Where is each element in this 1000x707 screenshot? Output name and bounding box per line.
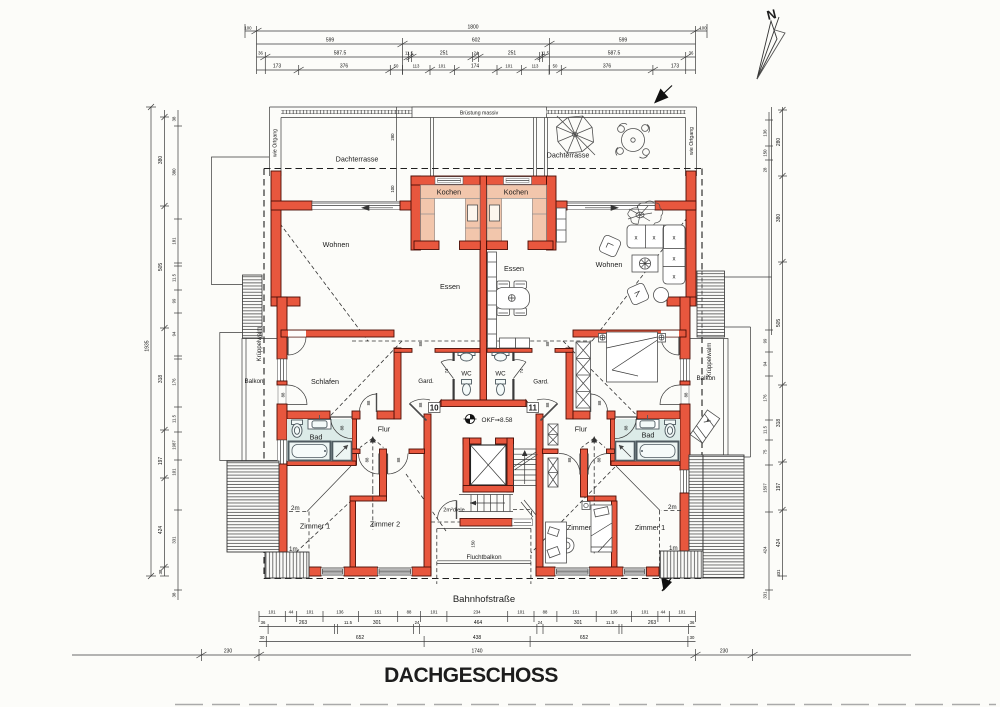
svg-text:Krüppelwalm: Krüppelwalm bbox=[257, 327, 263, 362]
svg-text:36: 36 bbox=[689, 51, 694, 56]
svg-text:424: 424 bbox=[158, 526, 164, 535]
svg-text:Fluchtbalkon: Fluchtbalkon bbox=[466, 554, 502, 561]
svg-text:176: 176 bbox=[763, 394, 768, 402]
svg-text:505: 505 bbox=[776, 319, 782, 328]
svg-text:2m: 2m bbox=[668, 504, 677, 511]
svg-text:599: 599 bbox=[326, 38, 335, 44]
svg-text:38: 38 bbox=[172, 592, 177, 597]
svg-text:Schlafen: Schlafen bbox=[311, 377, 339, 386]
svg-text:2m: 2m bbox=[291, 505, 300, 512]
svg-text:100: 100 bbox=[699, 26, 707, 31]
svg-text:DACHGESCHOSS: DACHGESCHOSS bbox=[384, 664, 558, 687]
svg-text:88: 88 bbox=[684, 392, 689, 397]
svg-text:602: 602 bbox=[472, 38, 481, 44]
svg-text:Flur: Flur bbox=[575, 425, 588, 434]
svg-text:11.5: 11.5 bbox=[405, 51, 414, 56]
svg-text:1m: 1m bbox=[669, 545, 678, 552]
svg-text:99: 99 bbox=[763, 338, 768, 343]
svg-text:100: 100 bbox=[390, 185, 395, 193]
svg-text:1740: 1740 bbox=[471, 649, 482, 655]
svg-text:Zimmer 1: Zimmer 1 bbox=[300, 522, 330, 531]
svg-text:94: 94 bbox=[172, 331, 177, 336]
svg-text:652: 652 bbox=[580, 635, 589, 641]
svg-text:36: 36 bbox=[261, 620, 266, 625]
svg-text:263: 263 bbox=[299, 620, 308, 626]
svg-text:Bahnhofstraße: Bahnhofstraße bbox=[453, 594, 515, 605]
svg-text:101: 101 bbox=[268, 610, 276, 615]
svg-text:36: 36 bbox=[258, 51, 263, 56]
svg-text:44: 44 bbox=[661, 610, 666, 615]
svg-text:44: 44 bbox=[289, 610, 294, 615]
svg-text:Krüppelwalm: Krüppelwalm bbox=[707, 343, 713, 378]
svg-text:88: 88 bbox=[365, 457, 370, 462]
svg-text:380: 380 bbox=[158, 156, 164, 165]
svg-text:280: 280 bbox=[776, 138, 782, 147]
svg-text:464: 464 bbox=[474, 620, 483, 626]
svg-text:318: 318 bbox=[158, 375, 164, 384]
svg-text:88: 88 bbox=[418, 402, 423, 407]
svg-text:331: 331 bbox=[763, 591, 768, 599]
svg-text:88: 88 bbox=[567, 457, 572, 462]
svg-text:181: 181 bbox=[172, 237, 177, 245]
svg-text:101: 101 bbox=[438, 64, 446, 69]
svg-text:Dachterrasse: Dachterrasse bbox=[336, 155, 379, 164]
svg-text:88: 88 bbox=[545, 402, 550, 407]
svg-text:301: 301 bbox=[373, 620, 382, 626]
svg-text:174: 174 bbox=[471, 64, 480, 70]
svg-text:11.5: 11.5 bbox=[763, 425, 768, 434]
svg-text:Zimmer 1: Zimmer 1 bbox=[635, 523, 665, 532]
svg-text:438: 438 bbox=[473, 635, 482, 641]
svg-text:Zimmer 2: Zimmer 2 bbox=[370, 520, 400, 529]
svg-text:136: 136 bbox=[763, 129, 768, 137]
svg-text:176: 176 bbox=[172, 378, 177, 386]
svg-text:75: 75 bbox=[763, 449, 768, 454]
svg-text:88: 88 bbox=[597, 457, 602, 462]
svg-text:x: x bbox=[673, 275, 676, 281]
svg-text:1800: 1800 bbox=[467, 25, 478, 31]
svg-text:376: 376 bbox=[603, 64, 612, 70]
svg-text:1m: 1m bbox=[289, 546, 298, 553]
svg-text:280: 280 bbox=[390, 133, 395, 141]
svg-text:24: 24 bbox=[415, 620, 420, 625]
svg-text:251: 251 bbox=[508, 51, 517, 57]
svg-text:Gard.: Gard. bbox=[533, 379, 549, 386]
svg-text:x: x bbox=[673, 257, 676, 263]
svg-text:301: 301 bbox=[574, 620, 583, 626]
svg-text:197: 197 bbox=[158, 457, 164, 466]
svg-text:24: 24 bbox=[538, 620, 543, 625]
svg-text:Essen: Essen bbox=[504, 264, 524, 273]
svg-text:251: 251 bbox=[440, 51, 449, 57]
svg-text:30: 30 bbox=[690, 635, 695, 640]
svg-text:88: 88 bbox=[366, 400, 371, 405]
svg-text:230: 230 bbox=[720, 649, 729, 655]
svg-text:331: 331 bbox=[172, 536, 177, 544]
svg-text:50: 50 bbox=[394, 64, 399, 69]
svg-text:652: 652 bbox=[356, 635, 365, 641]
svg-text:88: 88 bbox=[281, 392, 286, 397]
svg-text:1987: 1987 bbox=[172, 440, 177, 450]
svg-text:150: 150 bbox=[763, 149, 768, 157]
svg-text:101: 101 bbox=[505, 64, 513, 69]
svg-text:88: 88 bbox=[340, 425, 345, 430]
svg-text:11.5: 11.5 bbox=[172, 414, 177, 423]
svg-text:99: 99 bbox=[172, 298, 177, 303]
svg-text:1597: 1597 bbox=[763, 483, 768, 493]
svg-text:88: 88 bbox=[418, 341, 423, 346]
svg-text:380: 380 bbox=[776, 214, 782, 223]
svg-text:587.5: 587.5 bbox=[608, 51, 621, 57]
svg-text:234: 234 bbox=[473, 610, 481, 615]
svg-text:101: 101 bbox=[517, 610, 525, 615]
svg-text:Bad: Bad bbox=[310, 433, 323, 442]
svg-text:150: 150 bbox=[471, 540, 476, 548]
svg-text:30: 30 bbox=[260, 635, 265, 640]
svg-text:424: 424 bbox=[776, 539, 782, 548]
svg-text:38: 38 bbox=[172, 116, 177, 121]
svg-text:101: 101 bbox=[678, 610, 686, 615]
svg-text:74: 74 bbox=[444, 368, 449, 373]
svg-text:36: 36 bbox=[690, 620, 695, 625]
svg-text:11.5: 11.5 bbox=[606, 620, 615, 625]
svg-text:380: 380 bbox=[172, 168, 177, 176]
svg-text:WC: WC bbox=[461, 371, 472, 378]
svg-text:173: 173 bbox=[273, 64, 282, 70]
svg-text:Kochen: Kochen bbox=[437, 188, 461, 197]
svg-text:587.5: 587.5 bbox=[334, 51, 347, 57]
svg-text:331: 331 bbox=[776, 569, 781, 577]
svg-text:x: x bbox=[673, 236, 676, 242]
svg-text:151: 151 bbox=[374, 610, 382, 615]
svg-text:11: 11 bbox=[528, 404, 537, 413]
svg-text:38: 38 bbox=[158, 569, 163, 574]
svg-text:Flur: Flur bbox=[378, 425, 391, 434]
svg-text:2m²diele: 2m²diele bbox=[443, 508, 464, 514]
svg-text:10: 10 bbox=[430, 404, 439, 413]
svg-text:11.5: 11.5 bbox=[344, 620, 353, 625]
svg-text:88: 88 bbox=[543, 610, 548, 615]
svg-text:Gard.: Gard. bbox=[418, 378, 434, 385]
svg-text:113: 113 bbox=[413, 64, 420, 69]
svg-text:WC: WC bbox=[495, 371, 506, 378]
svg-text:Wohnen: Wohnen bbox=[596, 260, 623, 269]
svg-text:Bad: Bad bbox=[642, 431, 655, 440]
svg-text:101: 101 bbox=[430, 610, 438, 615]
svg-text:24: 24 bbox=[474, 51, 479, 56]
svg-text:88: 88 bbox=[597, 400, 602, 405]
svg-text:wie Ortgang: wie Ortgang bbox=[689, 127, 695, 155]
svg-text:197: 197 bbox=[776, 483, 782, 492]
svg-text:Kochen: Kochen bbox=[504, 188, 528, 197]
svg-text:74: 74 bbox=[519, 368, 524, 373]
svg-text:318: 318 bbox=[776, 419, 782, 428]
svg-text:94: 94 bbox=[763, 361, 768, 366]
svg-text:151: 151 bbox=[572, 610, 580, 615]
svg-text:230: 230 bbox=[224, 649, 233, 655]
svg-text:101: 101 bbox=[172, 468, 177, 476]
svg-text:599: 599 bbox=[619, 38, 628, 44]
svg-text:88: 88 bbox=[396, 457, 401, 462]
svg-text:28: 28 bbox=[763, 167, 768, 172]
svg-text:505: 505 bbox=[158, 263, 164, 272]
svg-text:11.5: 11.5 bbox=[541, 51, 550, 56]
svg-text:50: 50 bbox=[553, 64, 558, 69]
svg-text:101: 101 bbox=[641, 610, 649, 615]
svg-text:OKF➞8.58: OKF➞8.58 bbox=[482, 417, 513, 424]
svg-text:Wohnen: Wohnen bbox=[323, 240, 350, 249]
svg-text:136: 136 bbox=[610, 610, 618, 615]
svg-text:263: 263 bbox=[648, 620, 657, 626]
svg-text:Brüstung massiv: Brüstung massiv bbox=[460, 111, 499, 117]
svg-text:1935: 1935 bbox=[145, 340, 151, 351]
svg-text:11.5: 11.5 bbox=[172, 273, 177, 282]
svg-text:Essen: Essen bbox=[440, 282, 460, 291]
svg-text:88: 88 bbox=[407, 610, 412, 615]
svg-text:173: 173 bbox=[671, 64, 680, 70]
svg-text:x: x bbox=[635, 236, 638, 242]
svg-text:wie Ortgang: wie Ortgang bbox=[273, 129, 279, 157]
svg-text:136: 136 bbox=[336, 610, 344, 615]
svg-text:376: 376 bbox=[340, 64, 349, 70]
svg-text:88: 88 bbox=[624, 425, 629, 430]
svg-text:101: 101 bbox=[306, 610, 314, 615]
svg-text:88: 88 bbox=[545, 341, 550, 346]
svg-text:113: 113 bbox=[532, 64, 539, 69]
svg-text:x: x bbox=[653, 236, 656, 242]
svg-text:Balkon: Balkon bbox=[245, 378, 264, 385]
svg-text:100: 100 bbox=[244, 26, 252, 31]
svg-text:424: 424 bbox=[763, 546, 768, 554]
